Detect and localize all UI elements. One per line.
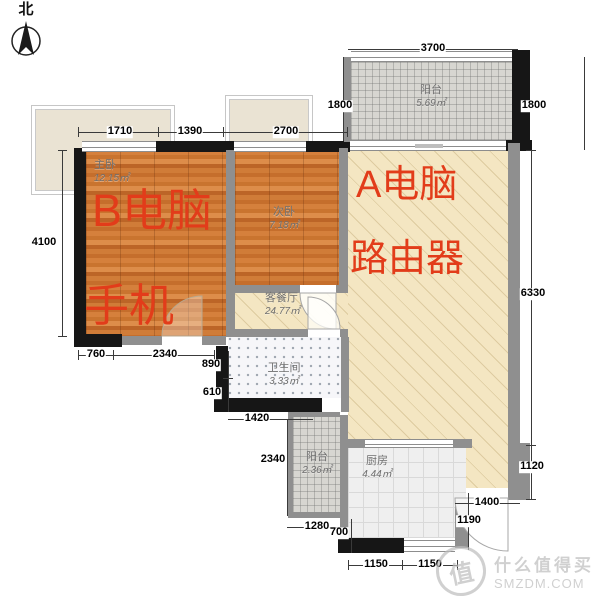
dim-tick [158, 127, 159, 137]
window-second-bedroom [234, 141, 306, 152]
dim-label-3700: 3700 [420, 43, 446, 55]
north-arrow-icon [8, 19, 44, 61]
wall-segment [122, 336, 162, 345]
dim-tick [113, 350, 114, 360]
wall-segment [341, 337, 349, 412]
annotation-router: 路由器 [350, 240, 464, 278]
dim-label-760: 760 [86, 349, 106, 361]
dim-line [287, 419, 288, 516]
dim-line [584, 57, 585, 150]
wall-segment [340, 329, 348, 337]
dim-line [62, 150, 63, 337]
wall-segment [288, 412, 340, 417]
annotation-phone: 手机 [84, 283, 174, 328]
wall-segment [214, 398, 322, 412]
dim-label-1800-left: 1800 [327, 100, 353, 112]
dim-tick [78, 350, 79, 360]
watermark-site: SMZDM.COM [494, 576, 594, 591]
dim-label-1800-right: 1800 [521, 100, 547, 112]
dim-label-4100: 4100 [31, 237, 57, 249]
wall-segment [336, 285, 348, 293]
wall-segment [345, 439, 365, 448]
dim-tick [58, 336, 67, 337]
dim-tick [526, 445, 536, 446]
dim-label-700: 700 [329, 527, 349, 539]
dim-line [228, 419, 313, 420]
wall-segment [508, 143, 520, 445]
wall-segment [339, 148, 348, 293]
dim-label-2700: 2700 [273, 126, 299, 138]
wall-segment [156, 141, 234, 152]
sliding-door-handle [415, 144, 443, 148]
dim-label-1400: 1400 [474, 497, 500, 509]
dim-label-6330: 6330 [520, 288, 546, 300]
wall-segment [226, 329, 308, 337]
wall-segment [288, 415, 293, 518]
dim-label-1150-a: 1150 [363, 559, 389, 571]
room-label-second-bedroom: 次卧 7.18㎡ [269, 205, 298, 232]
dim-tick [348, 560, 349, 570]
north-label: 北 [8, 2, 44, 19]
dim-line [228, 351, 229, 412]
dim-label-1190: 1190 [456, 515, 482, 527]
watermark: 值 什么值得买 SMZDM.COM [436, 546, 594, 596]
dim-label-1390: 1390 [177, 126, 203, 138]
dim-tick [402, 560, 403, 570]
dim-label-2340-b: 2340 [260, 454, 286, 466]
dim-label-2340: 2340 [152, 349, 178, 361]
wall-segment [226, 150, 235, 336]
room-label-kitchen: 厨房 4.44㎡ [362, 454, 391, 481]
wall-segment [338, 538, 404, 553]
wall-segment [202, 336, 226, 345]
wall-segment [453, 439, 472, 448]
annotation-b-computer: B电脑 [92, 188, 212, 233]
window-kitchen-pass [365, 439, 453, 448]
wall-segment [74, 334, 122, 347]
floor-plan: 北 [0, 0, 600, 600]
compass: 北 [8, 2, 44, 66]
annotation-a-computer: A电脑 [356, 166, 457, 204]
room-label-living-dining: 客餐厅 24.77㎡ [265, 291, 300, 318]
dim-label-610: 610 [202, 387, 222, 399]
dim-tick [78, 127, 79, 137]
dim-label-1420: 1420 [244, 413, 270, 425]
dim-tick [58, 150, 67, 151]
dim-tick [223, 378, 233, 379]
dim-tick [223, 127, 224, 137]
room-label-master-bedroom: 主卧 12.15㎡ [94, 158, 129, 185]
room-label-balcony-bottom: 阳台 2.36㎡ [302, 450, 331, 477]
dim-label-1710: 1710 [107, 126, 133, 138]
room-label-balcony-top: 阳台 5.69㎡ [416, 83, 445, 110]
dim-tick [526, 499, 536, 500]
dim-label-890: 890 [201, 359, 221, 371]
dim-tick [526, 150, 536, 151]
wall-segment [288, 512, 345, 518]
dim-label-1120: 1120 [519, 461, 545, 473]
wall-segment [340, 415, 348, 538]
room-label-bathroom: 卫生间 3.33㎡ [268, 361, 301, 388]
dim-line [531, 150, 532, 500]
window-master-bedroom [82, 141, 156, 152]
dim-tick [347, 127, 348, 137]
watermark-name: 什么值得买 [494, 551, 594, 576]
dim-line [351, 519, 352, 553]
dim-label-1280: 1280 [304, 521, 330, 533]
smzdm-logo-icon: 值 [431, 541, 490, 600]
